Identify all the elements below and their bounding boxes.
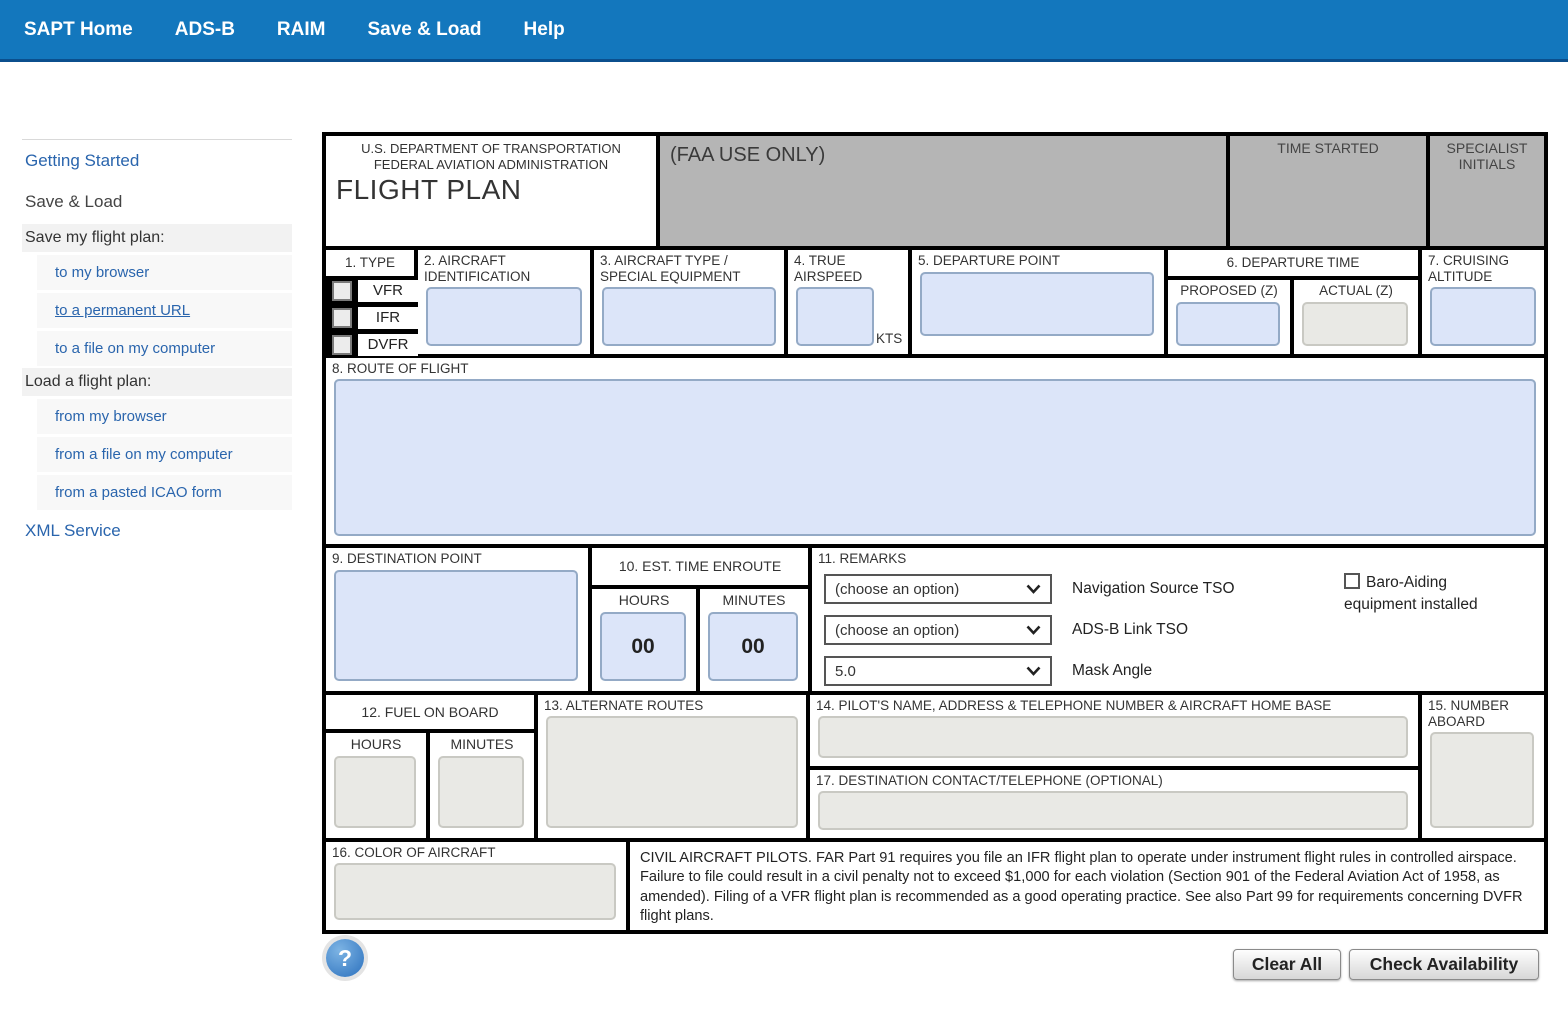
remarks-label: 11. REMARKS [812, 548, 1544, 567]
sidebar-load-from-browser[interactable]: from my browser [37, 399, 292, 434]
type-ifr-label: IFR [358, 307, 418, 329]
est-hours-input[interactable]: 00 [600, 612, 686, 681]
departure-time-header-cell: 6. DEPARTURE TIME [1168, 250, 1418, 276]
departure-point-label: 5. DEPARTURE POINT [912, 250, 1164, 269]
aircraft-id-input[interactable] [426, 287, 582, 346]
type-header-cell: 1. TYPE [326, 250, 414, 276]
check-availability-button[interactable]: Check Availability [1349, 949, 1539, 980]
baro-aiding-label-line2: equipment installed [1344, 594, 1522, 616]
type-label: 1. TYPE [326, 255, 414, 271]
est-minutes-input[interactable]: 00 [708, 612, 798, 681]
nav-ads-b[interactable]: ADS-B [175, 19, 235, 41]
fuel-hours-input[interactable] [334, 756, 416, 828]
type-vfr-label: VFR [358, 280, 418, 302]
proposed-time-input[interactable] [1176, 302, 1280, 346]
aircraft-type-input[interactable] [602, 287, 776, 346]
time-started-box: TIME STARTED [1230, 136, 1426, 246]
sidebar-load-from-icao[interactable]: from a pasted ICAO form [37, 475, 292, 510]
sidebar-save-to-browser[interactable]: to my browser [37, 255, 292, 290]
mask-angle-select[interactable]: 5.0 [824, 656, 1052, 686]
est-hours-label: HOURS [592, 589, 696, 608]
proposed-label: PROPOSED (Z) [1168, 280, 1290, 299]
mask-angle-label: Mask Angle [1072, 662, 1152, 680]
civil-notice-cell: CIVIL AIRCRAFT PILOTS. FAR Part 91 requi… [630, 842, 1544, 930]
baro-aiding-label-line1: Baro-Aiding [1366, 574, 1447, 591]
true-airspeed-cell: 4. TRUE AIRSPEED KTS [788, 250, 908, 354]
dest-contact-label: 17. DESTINATION CONTACT/TELEPHONE (OPTIO… [810, 770, 1418, 789]
color-of-aircraft-label: 16. COLOR OF AIRCRAFT [326, 842, 626, 861]
fuel-label: 12. FUEL ON BOARD [326, 704, 534, 720]
pilot-info-input[interactable] [818, 716, 1408, 758]
baro-aiding-checkbox[interactable] [1344, 573, 1360, 589]
actual-time-input[interactable] [1302, 302, 1408, 346]
specialist-initials-box: SPECIALIST INITIALS [1430, 136, 1544, 246]
actual-time-cell: ACTUAL (Z) [1294, 280, 1418, 354]
est-minutes-cell: MINUTES 00 [700, 589, 808, 691]
nav-sapt-home[interactable]: SAPT Home [24, 19, 133, 41]
color-of-aircraft-input[interactable] [334, 863, 616, 920]
alternate-routes-label: 13. ALTERNATE ROUTES [538, 695, 806, 714]
cruising-altitude-label: 7. CRUISING ALTITUDE [1422, 250, 1544, 284]
true-airspeed-input[interactable] [796, 287, 874, 346]
sidebar-save-to-permanent-url[interactable]: to a permanent URL [37, 293, 292, 328]
departure-point-input[interactable] [920, 272, 1154, 336]
pilot-info-label: 14. PILOT'S NAME, ADDRESS & TELEPHONE NU… [810, 695, 1418, 714]
clear-all-button[interactable]: Clear All [1233, 949, 1341, 980]
nav-raim[interactable]: RAIM [277, 19, 326, 41]
chevron-down-icon [1026, 584, 1041, 594]
nav-source-select[interactable]: (choose an option) [824, 574, 1052, 604]
alternate-routes-cell: 13. ALTERNATE ROUTES [538, 695, 806, 838]
sidebar-current-page: Save & Load [22, 181, 292, 222]
dept-line-1: U.S. DEPARTMENT OF TRANSPORTATION [326, 136, 656, 157]
mask-angle-value: 5.0 [835, 663, 856, 680]
est-minutes-label: MINUTES [700, 589, 808, 608]
number-aboard-input[interactable] [1430, 732, 1534, 828]
aircraft-id-cell: 2. AIRCRAFT IDENTIFICATION [418, 250, 590, 354]
proposed-time-cell: PROPOSED (Z) [1168, 280, 1290, 354]
true-airspeed-label: 4. TRUE AIRSPEED [788, 250, 908, 284]
pilot-info-cell: 14. PILOT'S NAME, ADDRESS & TELEPHONE NU… [810, 695, 1418, 766]
aircraft-type-cell: 3. AIRCRAFT TYPE / SPECIAL EQUIPMENT [594, 250, 784, 354]
sidebar-load-header: Load a flight plan: [22, 368, 292, 396]
type-dvfr-checkbox[interactable] [332, 335, 352, 355]
adsb-link-label: ADS-B Link TSO [1072, 621, 1188, 639]
destination-cell: 9. DESTINATION POINT [326, 548, 588, 691]
chevron-down-icon [1026, 666, 1041, 676]
departure-time-label: 6. DEPARTURE TIME [1168, 255, 1418, 271]
form-title: FLIGHT PLAN [326, 172, 656, 206]
time-started-label: TIME STARTED [1230, 136, 1426, 156]
sidebar-load-from-file[interactable]: from a file on my computer [37, 437, 292, 472]
fuel-minutes-cell: MINUTES [430, 733, 534, 838]
fuel-minutes-label: MINUTES [430, 733, 534, 752]
dept-line-2: FEDERAL AVIATION ADMINISTRATION [326, 157, 656, 173]
route-cell: 8. ROUTE OF FLIGHT [326, 358, 1544, 544]
sidebar: Getting Started Save & Load Save my flig… [22, 139, 292, 551]
fuel-hours-cell: HOURS [326, 733, 426, 838]
fuel-header-cell: 12. FUEL ON BOARD [326, 695, 534, 729]
fuel-hours-label: HOURS [326, 733, 426, 752]
cruising-altitude-cell: 7. CRUISING ALTITUDE [1422, 250, 1544, 354]
adsb-link-select[interactable]: (choose an option) [824, 615, 1052, 645]
civil-notice-text: CIVIL AIRCRAFT PILOTS. FAR Part 91 requi… [630, 842, 1544, 934]
actual-label: ACTUAL (Z) [1294, 280, 1418, 299]
est-time-label: 10. EST. TIME ENROUTE [592, 558, 808, 574]
type-ifr-checkbox[interactable] [332, 308, 352, 328]
nav-source-label: Navigation Source TSO [1072, 580, 1235, 598]
specialist-initials-label: SPECIALIST INITIALS [1430, 136, 1544, 172]
nav-source-value: (choose an option) [835, 581, 959, 598]
nav-save-load[interactable]: Save & Load [367, 19, 481, 41]
cruising-altitude-input[interactable] [1430, 287, 1536, 346]
faa-use-only-box: (FAA USE ONLY) [660, 136, 1226, 246]
nav-help[interactable]: Help [524, 19, 565, 41]
type-vfr-checkbox[interactable] [332, 281, 352, 301]
sidebar-save-header: Save my flight plan: [22, 224, 292, 252]
est-time-header-cell: 10. EST. TIME ENROUTE [592, 548, 808, 585]
sidebar-getting-started[interactable]: Getting Started [22, 140, 292, 181]
est-hours-cell: HOURS 00 [592, 589, 696, 691]
departure-point-cell: 5. DEPARTURE POINT [912, 250, 1164, 354]
route-input[interactable] [334, 379, 1536, 536]
aircraft-type-label: 3. AIRCRAFT TYPE / SPECIAL EQUIPMENT [594, 250, 784, 284]
alternate-routes-input[interactable] [546, 716, 798, 828]
sidebar-save-to-file[interactable]: to a file on my computer [37, 331, 292, 366]
chevron-down-icon [1026, 625, 1041, 635]
dest-contact-cell: 17. DESTINATION CONTACT/TELEPHONE (OPTIO… [810, 770, 1418, 838]
destination-input[interactable] [334, 570, 578, 681]
fuel-minutes-input[interactable] [438, 756, 524, 828]
number-aboard-cell: 15. NUMBER ABOARD [1422, 695, 1544, 838]
form-title-cell: U.S. DEPARTMENT OF TRANSPORTATION FEDERA… [326, 136, 656, 246]
color-of-aircraft-cell: 16. COLOR OF AIRCRAFT [326, 842, 626, 930]
type-dvfr-label: DVFR [358, 334, 418, 356]
sidebar-xml-service[interactable]: XML Service [22, 510, 292, 551]
aircraft-id-label: 2. AIRCRAFT IDENTIFICATION [418, 250, 590, 284]
top-nav-bar: SAPT Home ADS-B RAIM Save & Load Help [0, 0, 1568, 62]
number-aboard-label: 15. NUMBER ABOARD [1422, 695, 1544, 729]
faa-use-only-label: (FAA USE ONLY) [660, 136, 1226, 167]
route-label: 8. ROUTE OF FLIGHT [326, 358, 1544, 377]
adsb-link-value: (choose an option) [835, 622, 959, 639]
help-icon[interactable]: ? [326, 939, 364, 977]
dest-contact-input[interactable] [818, 791, 1408, 830]
flight-plan-form: U.S. DEPARTMENT OF TRANSPORTATION FEDERA… [322, 132, 1548, 934]
remarks-cell: 11. REMARKS (choose an option) Navigatio… [812, 548, 1544, 691]
kts-unit-label: KTS [876, 284, 908, 354]
destination-label: 9. DESTINATION POINT [326, 548, 588, 567]
